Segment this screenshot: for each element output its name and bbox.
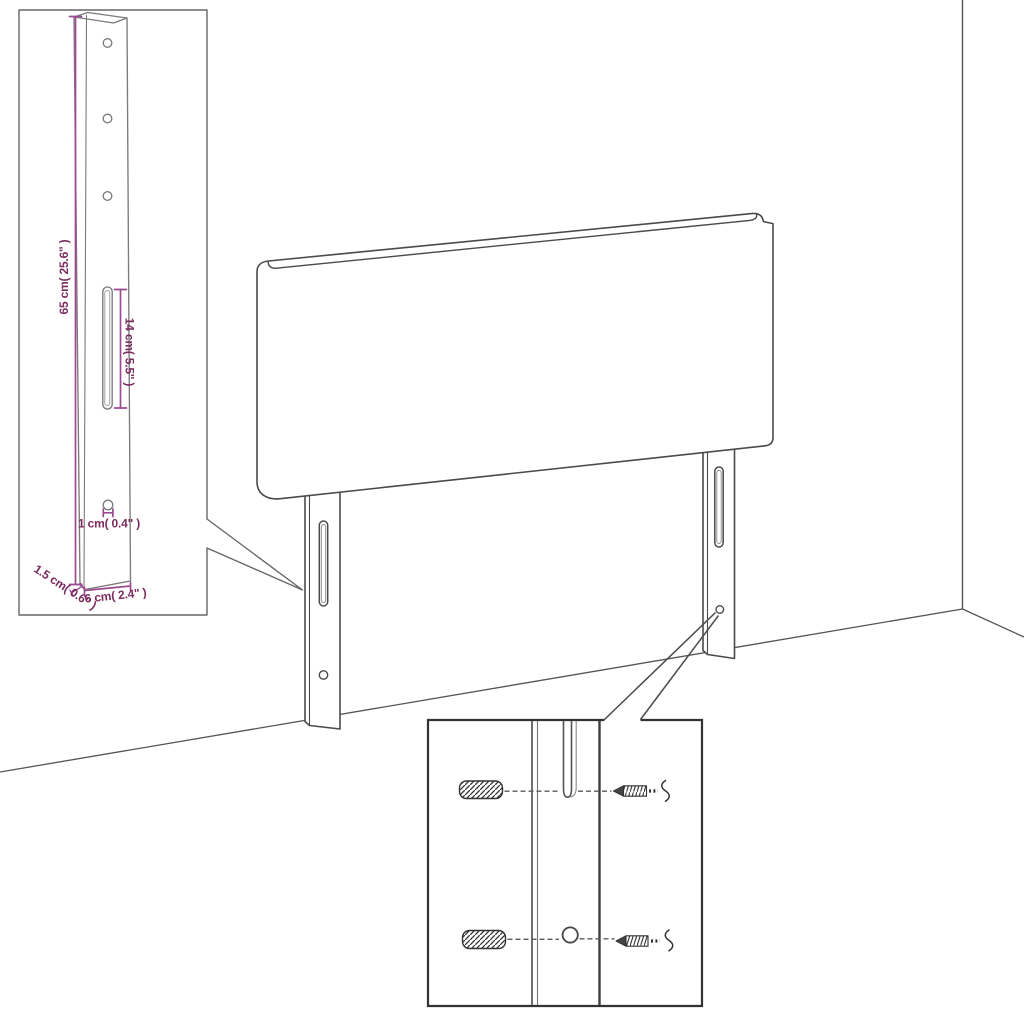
hardware-leg-hole: [563, 927, 578, 942]
headboard: [257, 213, 773, 498]
hardware-detail-inset: [428, 613, 719, 1007]
headboard-panel: [257, 213, 773, 498]
left-leg-body: [305, 478, 340, 729]
headboard-left-leg: [305, 478, 340, 729]
product-dimension-diagram: 65 cm( 25.6" ) 14 cm( 5.5" ) 1 cm( 0.4" …: [0, 0, 1024, 1024]
hardware-callout-line-left: [605, 613, 716, 720]
hardware-box: [428, 720, 702, 1006]
floor-line-right: [963, 609, 1024, 637]
dim-slot-label: 14 cm( 5.5" ): [123, 318, 137, 387]
wall-plug-icon-top: [460, 781, 503, 799]
dim-height-label: 65 cm( 25.6" ): [57, 239, 71, 314]
wall-plug-icon-bottom: [463, 931, 506, 949]
hardware-callout-line-right: [641, 616, 719, 720]
dim-hole-label: 1 cm( 0.4" ): [78, 517, 140, 531]
diagram-canvas: 65 cm( 25.6" ) 14 cm( 5.5" ) 1 cm( 0.4" …: [0, 0, 1024, 1024]
headboard-right-leg: [703, 438, 735, 659]
